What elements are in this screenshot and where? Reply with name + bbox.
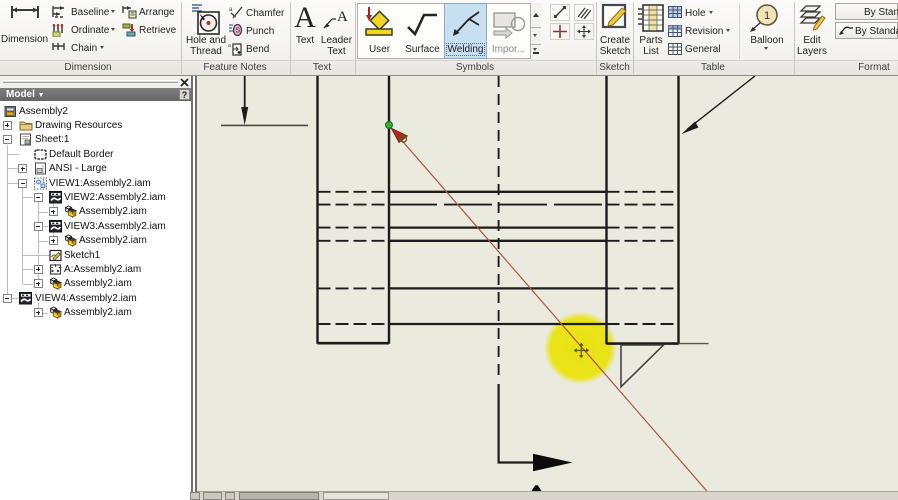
svg-text:1: 1 — [764, 10, 770, 22]
svg-text:S: S — [236, 28, 241, 35]
svg-text:a: a — [229, 7, 233, 13]
svg-text:A: A — [337, 9, 348, 25]
svg-text:a: a — [228, 43, 231, 49]
